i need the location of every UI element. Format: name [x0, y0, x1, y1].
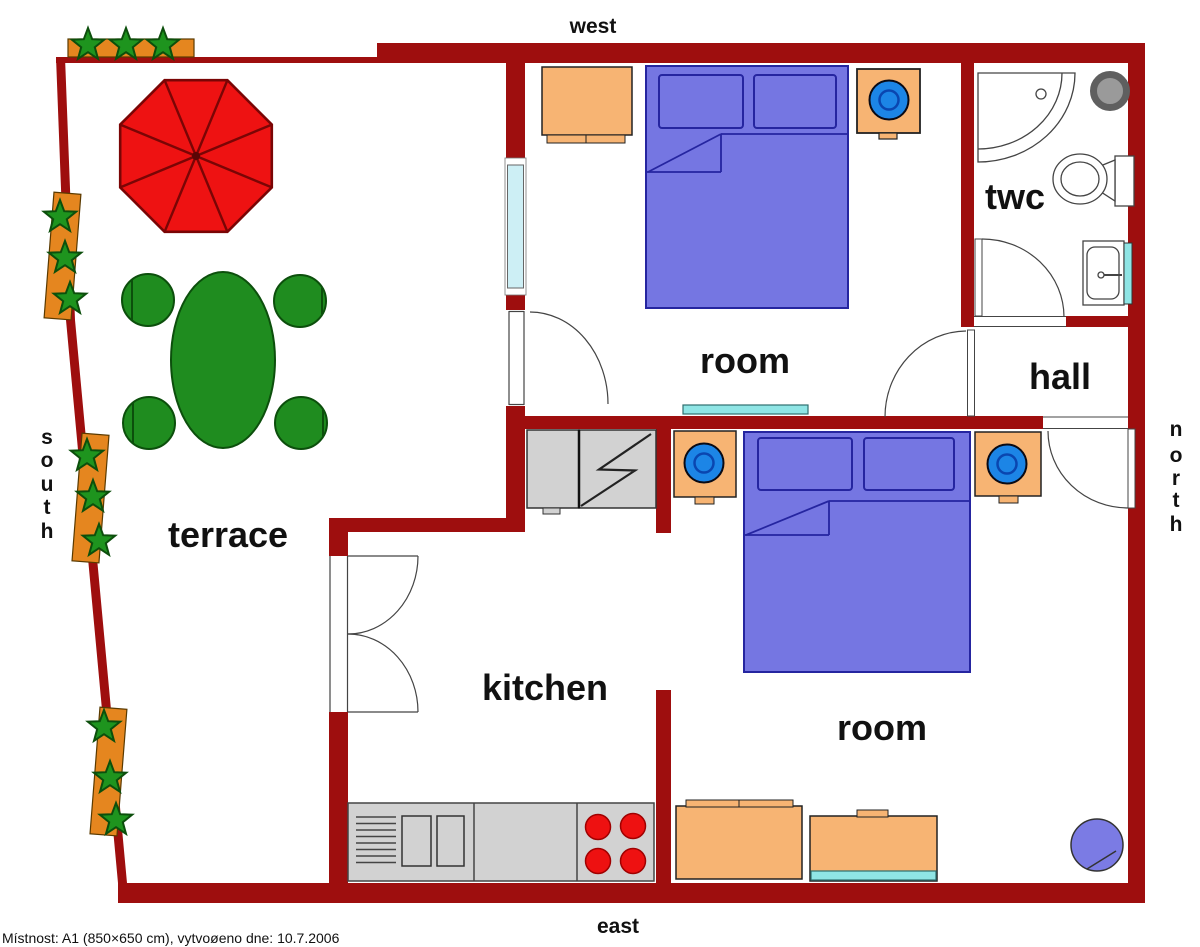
svg-text:west: west: [569, 15, 617, 38]
svg-text:room: room: [837, 707, 927, 748]
svg-text:Místnost: A1 (850×650 cm), vyt: Místnost: A1 (850×650 cm), vytvoøeno dne…: [2, 930, 340, 946]
svg-text:t: t: [1173, 489, 1180, 512]
svg-text:twc: twc: [985, 176, 1045, 217]
svg-text:kitchen: kitchen: [482, 667, 608, 708]
svg-text:u: u: [41, 473, 54, 496]
svg-text:r: r: [1172, 467, 1180, 490]
svg-text:terrace: terrace: [168, 514, 288, 555]
svg-text:n: n: [1170, 418, 1183, 441]
svg-text:s: s: [41, 426, 53, 449]
svg-text:o: o: [1170, 444, 1183, 467]
svg-text:t: t: [44, 496, 51, 519]
svg-text:h: h: [1170, 513, 1183, 536]
svg-text:room: room: [700, 340, 790, 381]
svg-text:hall: hall: [1029, 356, 1091, 397]
svg-text:east: east: [597, 915, 639, 938]
svg-text:h: h: [41, 520, 54, 543]
svg-text:o: o: [41, 449, 54, 472]
